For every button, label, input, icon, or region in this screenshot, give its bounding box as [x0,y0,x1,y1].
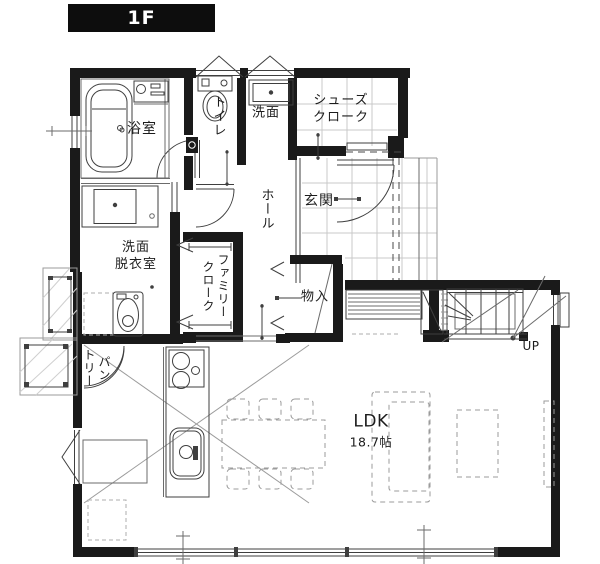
floor-label: 1F [127,7,155,29]
kitchen-sink-icon [170,428,204,479]
room-label-washbasin: 洗面 [252,106,280,123]
toilet-door [196,185,234,228]
heat-pump-unit-icon [24,344,68,387]
entrance-cabinet [346,290,443,334]
floor-plan-drawing [0,0,600,564]
gas-stove-icon [169,350,204,389]
entrance-step-line [296,158,300,283]
room-label-shoe-closet: シューズ クローク [313,93,369,127]
paper-holder-icon [186,137,198,153]
entrance-door [337,160,394,222]
room-label-pantry: パン トリー [81,349,111,388]
kitchen-back-counter [83,440,147,540]
room-label-storage: 物入 [301,290,329,307]
shower-panel-icon [134,81,168,104]
water-heater-tank-icon [48,276,72,333]
room-label-family-closet: ファミリー クローク [200,254,230,319]
room-label-hall: ホール [257,188,274,230]
floor-label-banner: 1F [68,4,215,32]
floor-plan-1f: 1F 浴室 トイレ 洗面 シューズ クローク 玄関 ホール 洗面 脱衣室 ファミ… [0,0,600,564]
kitchen-island [164,347,210,497]
leader-lines [46,126,431,564]
stairs-up-label: UP [522,339,539,355]
bathtub-icon [86,84,132,172]
outdoor-equipment [20,268,77,395]
ldk-name: LDK [350,412,393,432]
room-label-toilet: トイレ [209,95,226,137]
room-label-ldk: LDK 18.7帖 [350,412,393,451]
washing-machine-icon [84,292,143,336]
dining-table-icon [222,399,325,489]
room-label-entrance: 玄関 [304,192,334,210]
room-label-bathroom: 浴室 [127,120,157,138]
coffee-table-icon [457,410,498,477]
vent-triangle-toilet [196,56,243,77]
vent-triangle-kitchen [62,430,80,484]
vent-triangle-washbasin [245,56,295,77]
porch-edge [393,158,437,281]
room-label-washroom: 洗面 脱衣室 [115,240,157,274]
wash-basin-icon [249,80,293,105]
ldk-size: 18.7帖 [350,432,393,451]
